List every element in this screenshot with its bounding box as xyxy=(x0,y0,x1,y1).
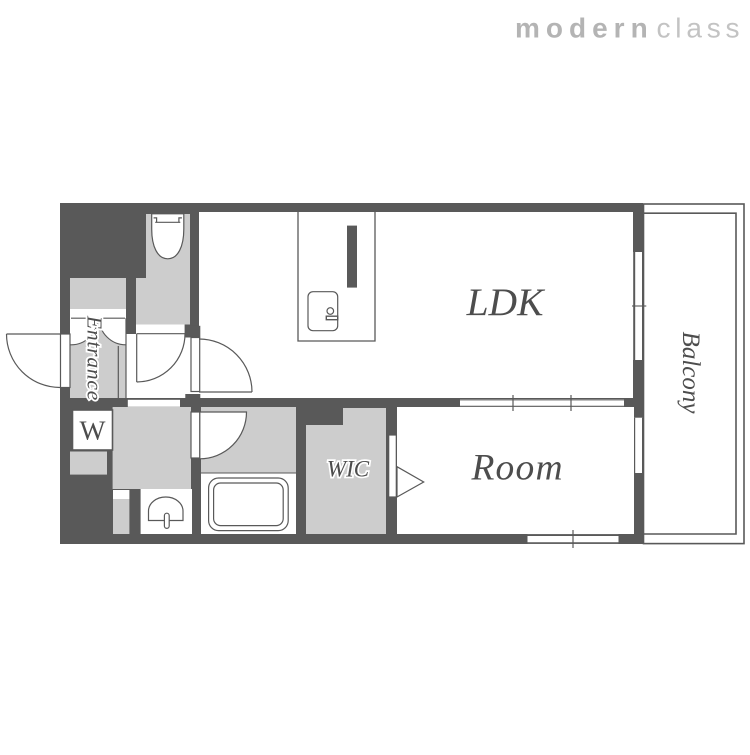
svg-text:class: class xyxy=(657,12,745,43)
svg-text:modern: modern xyxy=(515,12,654,43)
svg-text:Balcony: Balcony xyxy=(677,332,704,415)
svg-text:Room: Room xyxy=(470,447,563,488)
svg-text:WIC: WIC xyxy=(327,457,370,482)
svg-text:W: W xyxy=(80,415,106,446)
svg-text:LDK: LDK xyxy=(466,280,546,324)
svg-text:Entrance: Entrance xyxy=(83,315,107,401)
